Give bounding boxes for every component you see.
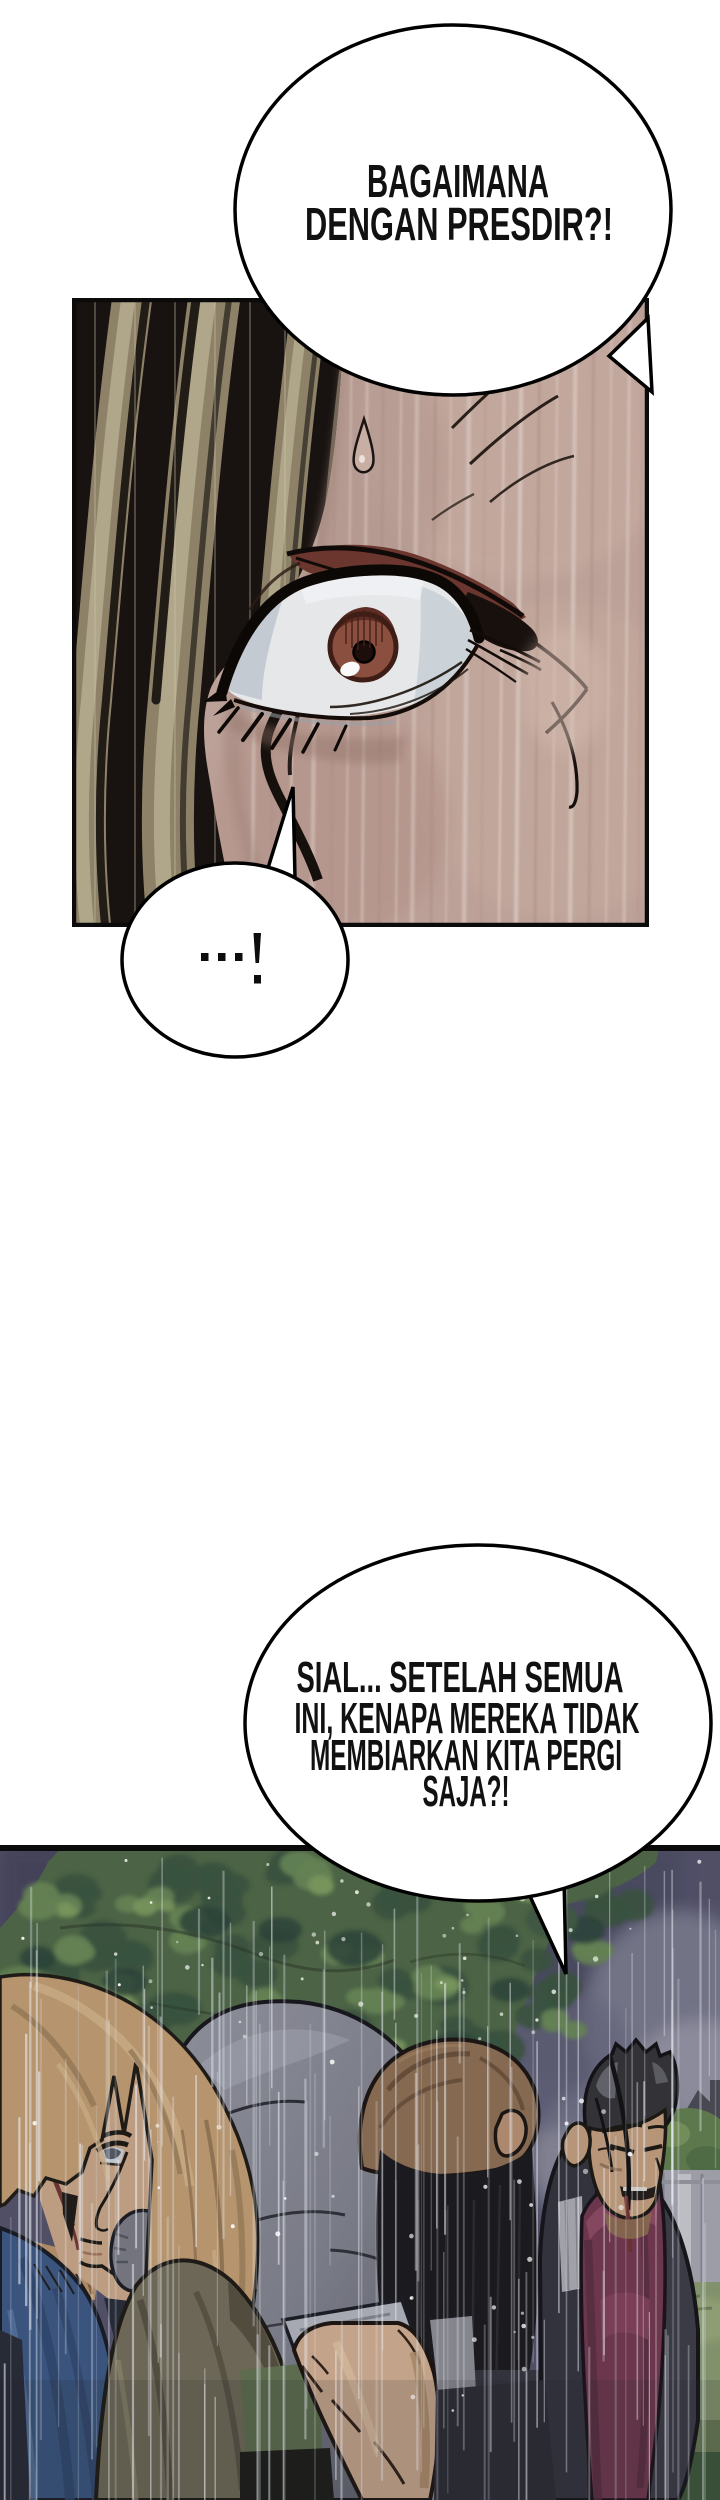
svg-text:DENGAN PRESDIR?!: DENGAN PRESDIR?! <box>305 198 613 250</box>
svg-text:SAJA?!: SAJA?! <box>423 1767 510 1816</box>
